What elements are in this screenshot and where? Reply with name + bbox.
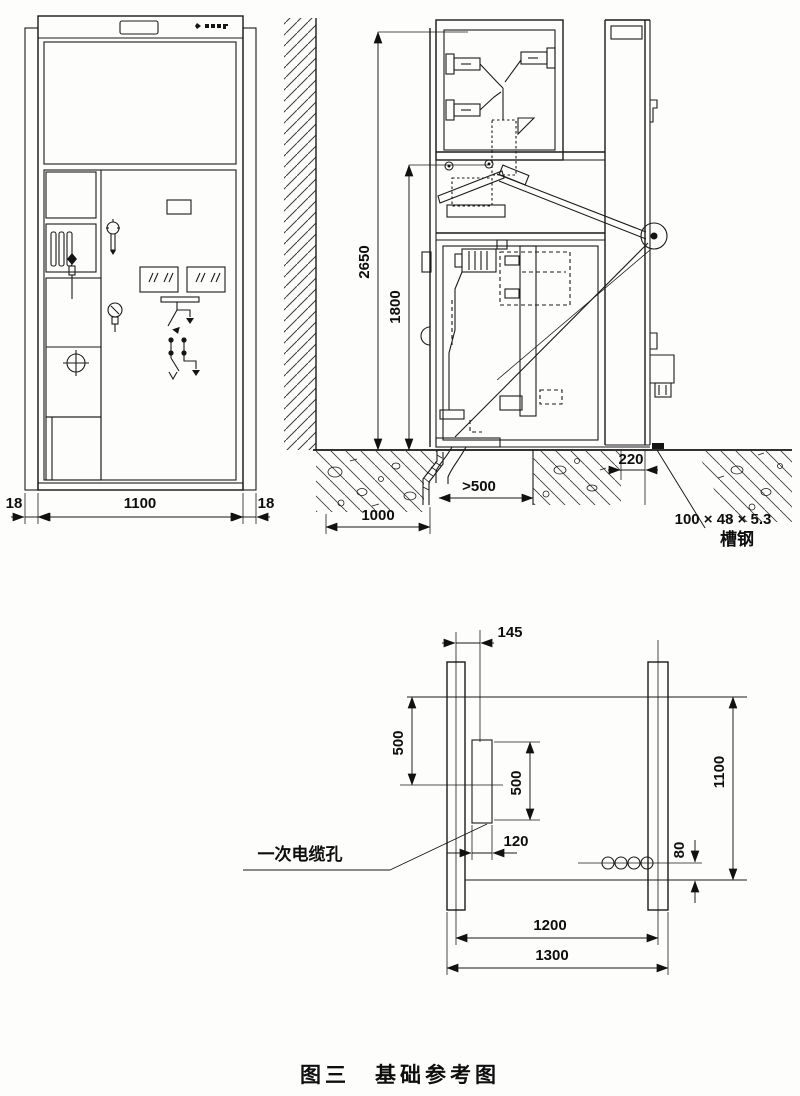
- pedestal: [38, 483, 243, 490]
- meter-left-icon: [140, 267, 178, 292]
- panel-bottom: [46, 417, 101, 480]
- foundation-mid-block: [533, 450, 621, 505]
- busbar-symbol: [161, 297, 199, 302]
- cabinet-outline: [38, 16, 243, 490]
- dim-trench-width: >500: [462, 478, 496, 495]
- panel-louver: [46, 224, 96, 272]
- door-nameplate: [611, 26, 642, 39]
- mechanism-compartment: [436, 160, 646, 240]
- dim-145: 145: [497, 624, 522, 641]
- rear-bump: [421, 327, 430, 345]
- dim-1300: 1300: [535, 947, 568, 964]
- dim-80: 80: [671, 842, 688, 859]
- wall-hatch: [284, 18, 316, 450]
- breaker-compartment: [436, 240, 650, 447]
- front-view: 18 1100 18: [6, 16, 275, 524]
- brand-logo-icon: [195, 23, 228, 29]
- meter-right-icon: [187, 267, 225, 292]
- panel-blank: [46, 172, 96, 218]
- dim-120: 120: [503, 833, 528, 850]
- channel-steel-spec: 100 × 48 × 5.3: [675, 511, 772, 528]
- upper-door: [44, 42, 236, 164]
- plan-dimensions: 145 500 500 1100 120 80 1200 1300: [390, 624, 733, 975]
- left-flange: [25, 28, 38, 490]
- lower-door: [44, 170, 236, 480]
- cabinet-side-section: [421, 20, 674, 484]
- door-hinge: [650, 333, 657, 349]
- right-flange: [243, 28, 256, 490]
- busbar-chamber: [436, 20, 605, 175]
- nameplate: [120, 21, 158, 34]
- dim-500-hole: 500: [508, 770, 525, 795]
- channel-steel-name: 槽钢: [720, 529, 754, 549]
- fuse-indicator-icon: [67, 253, 77, 299]
- foundation-left-block: [316, 450, 443, 512]
- dim-lower-section-height: 1800: [387, 290, 404, 323]
- dim-cabinet-width: 1100: [124, 495, 157, 512]
- primary-cable-hole-label: 一次电缆孔: [258, 844, 343, 864]
- drawing-page: 18 1100 18: [0, 0, 800, 1096]
- dim-right-flange: 18: [258, 495, 275, 512]
- front-dimensions: 18 1100 18: [6, 493, 275, 524]
- foundation-plan: 145 500 500 1100 120 80 1200 1300: [243, 624, 747, 975]
- primary-cable-hole: [472, 740, 492, 823]
- dim-1100: 1100: [711, 756, 728, 789]
- small-window: [167, 200, 191, 214]
- dim-1200: 1200: [533, 917, 566, 934]
- bushing-dashed: [492, 120, 516, 175]
- dim-500-left: 500: [390, 730, 407, 755]
- crosshair-button-icon: [63, 350, 89, 376]
- key-switch-lower-icon: [108, 303, 122, 332]
- dim-left-flange: 18: [6, 495, 23, 512]
- channel-steel-mark: [652, 443, 664, 449]
- front-door: [605, 20, 674, 445]
- key-switch-upper-icon: [106, 219, 120, 255]
- side-view: 100 × 48 × 5.3 槽钢 2650 1800 >500 1000 22…: [284, 18, 792, 549]
- foundation-reference-drawing: 18 1100 18: [0, 0, 800, 1096]
- figure-caption: 图三 基础参考图: [300, 1063, 500, 1087]
- dim-total-height: 2650: [356, 245, 373, 278]
- dim-foundation-apron: 1000: [361, 507, 394, 524]
- single-line-diagram: [161, 297, 200, 379]
- door-handle-icon: [650, 100, 657, 122]
- busbar-support-icons: [446, 48, 555, 120]
- secondary-plug: [650, 355, 674, 397]
- dim-rear-clearance: 220: [618, 451, 643, 468]
- cable-hole-callout: 一次电缆孔: [243, 824, 487, 870]
